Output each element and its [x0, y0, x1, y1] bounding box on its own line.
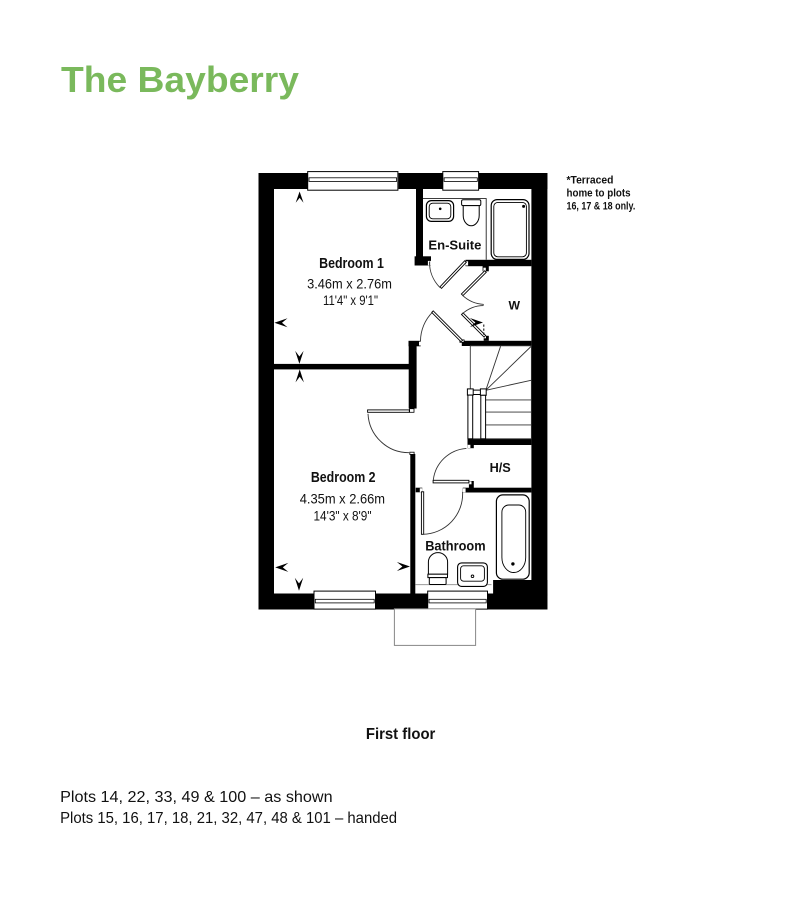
svg-text:3.46m x 2.76m: 3.46m x 2.76m [307, 277, 392, 292]
svg-text:home to plots: home to plots [567, 188, 631, 200]
svg-text:11'4" x 9'1": 11'4" x 9'1" [323, 293, 378, 308]
svg-text:First floor: First floor [366, 726, 436, 743]
svg-text:The Bayberry: The Bayberry [61, 59, 300, 100]
svg-text:4.35m x 2.66m: 4.35m x 2.66m [300, 492, 385, 507]
svg-text:H/S: H/S [490, 461, 511, 475]
svg-text:Bathroom: Bathroom [425, 538, 485, 554]
svg-text:Plots 15, 16, 17, 18, 21, 32,: Plots 15, 16, 17, 18, 21, 32, 47, 48 & 1… [60, 810, 397, 827]
svg-text:W: W [508, 299, 520, 313]
svg-text:En-Suite: En-Suite [428, 238, 481, 252]
svg-text:*Terraced: *Terraced [567, 174, 614, 186]
svg-text:Bedroom 2: Bedroom 2 [311, 470, 376, 486]
svg-text:14'3" x 8'9": 14'3" x 8'9" [314, 509, 372, 524]
svg-text:Plots 14, 22, 33, 49 & 100 –: Plots 14, 22, 33, 49 & 100 – as shown [60, 789, 333, 806]
svg-text:Bedroom 1: Bedroom 1 [319, 256, 384, 272]
svg-text:16, 17 & 18 only.: 16, 17 & 18 only. [567, 201, 636, 213]
